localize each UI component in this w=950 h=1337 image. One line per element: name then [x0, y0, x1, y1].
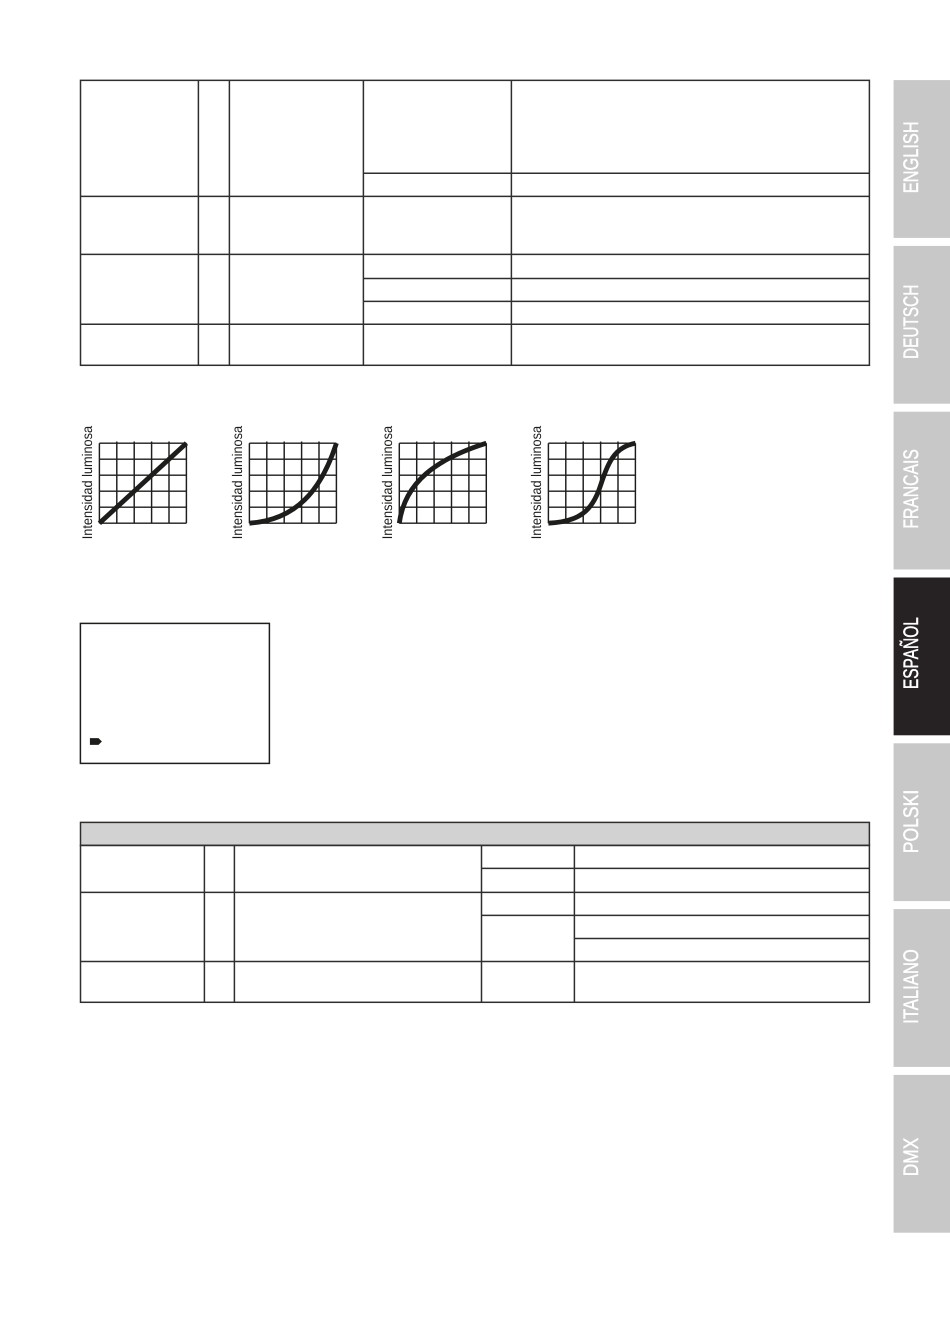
svg-text:POLSKI: POLSKI [900, 790, 923, 854]
svg-text:ESPAÑOL: ESPAÑOL [899, 617, 923, 689]
svg-text:DMX: DMX [900, 1138, 923, 1177]
svg-text:Intensidad luminosa: Intensidad luminosa [379, 426, 395, 540]
svg-text:DEUTSCH: DEUTSCH [900, 285, 923, 360]
svg-text:ITALIANO: ITALIANO [900, 949, 923, 1024]
svg-text:Intensidad luminosa: Intensidad luminosa [229, 426, 245, 540]
svg-text:Intensidad luminosa: Intensidad luminosa [528, 426, 544, 540]
svg-text:Intensidad luminosa: Intensidad luminosa [79, 426, 95, 540]
svg-text:FRANCAIS: FRANCAIS [900, 449, 923, 529]
svg-text:ENGLISH: ENGLISH [900, 121, 923, 193]
